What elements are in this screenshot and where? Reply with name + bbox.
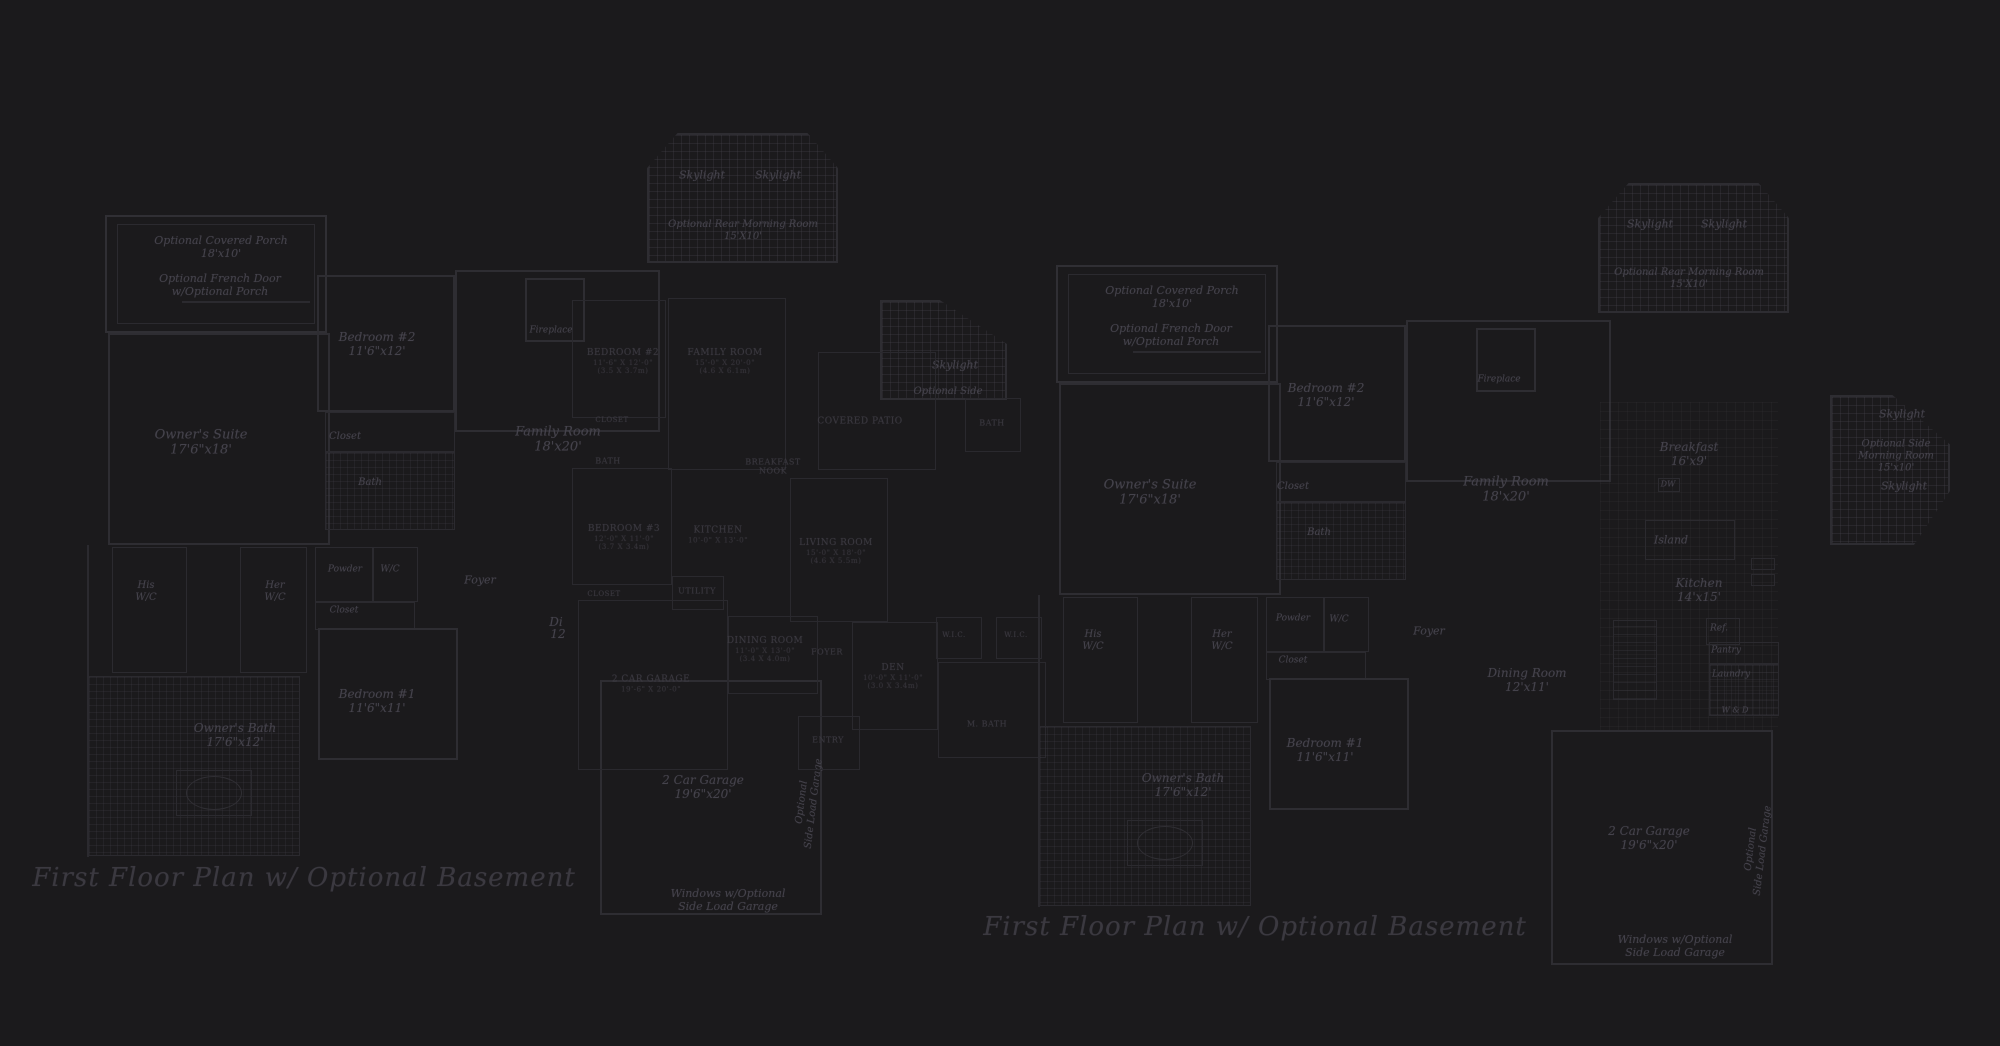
right-plan-title: First Floor Plan w/ Optional Basement xyxy=(983,912,1527,942)
room-label-2-car-garage: 2 Car Garage19'6"x20' xyxy=(1608,824,1690,852)
bath-room xyxy=(1276,502,1406,580)
left-plan-title: First Floor Plan w/ Optional Basement xyxy=(32,863,576,893)
room-label-her: HerW/C xyxy=(1211,629,1232,653)
room-label-optional-french-door: Optional French Doorw/Optional Porch xyxy=(1110,323,1232,349)
room-label-w-d: W & D xyxy=(1722,705,1749,714)
his-wc-room xyxy=(1063,597,1138,723)
room-label-skylight: Skylight xyxy=(1879,409,1925,422)
room-label-skylight: Skylight xyxy=(1701,219,1747,232)
french-door-line xyxy=(1133,351,1261,353)
room-label-laundry: Laundry xyxy=(1712,670,1750,681)
room-label-island: Island xyxy=(1654,535,1688,548)
room-label-closet: Closet xyxy=(1279,656,1308,667)
tub-oval xyxy=(1137,826,1193,860)
room-label-breakfast: Breakfast16'x9' xyxy=(1660,440,1719,468)
stairs xyxy=(1613,620,1657,700)
room-label-w-c: W/C xyxy=(1329,615,1348,626)
room-label-powder: Powder xyxy=(1276,614,1310,625)
room-label-skylight: Skylight xyxy=(1627,219,1673,232)
room-label-dining-room: Dining Room12'x11' xyxy=(1487,666,1566,694)
room-label-dw: DW xyxy=(1661,479,1676,488)
oven-box-1 xyxy=(1751,558,1775,570)
room-label-bath: Bath xyxy=(1307,527,1331,539)
room-label-family-room: Family Room18'x20' xyxy=(1463,475,1549,506)
owners-bath-room xyxy=(1039,726,1251,906)
room-label-owner-s-bath: Owner's Bath17'6"x12' xyxy=(1142,771,1224,799)
her-wc-room xyxy=(1191,597,1258,723)
blueprint-composite-canvas: Optional Covered Porch18'x10'Optional Fr… xyxy=(0,0,2000,1046)
room-label-fireplace: Fireplace xyxy=(1477,375,1520,386)
room-label-foyer: Foyer xyxy=(1413,626,1445,639)
room-label-closet: Closet xyxy=(1277,481,1309,493)
room-label-optional-rear-morning-room: Optional Rear Morning Room15'X10' xyxy=(1614,267,1764,291)
room-label-bedroom-2: Bedroom #211'6"x12' xyxy=(1288,381,1365,409)
rear-morning-room xyxy=(1598,183,1789,313)
room-label-optional-covered-porch: Optional Covered Porch18'x10' xyxy=(1105,285,1238,311)
room-label-windows-w-optional: Windows w/OptionalSide Load Garage xyxy=(1618,934,1733,960)
room-label-bedroom-1: Bedroom #111'6"x11' xyxy=(1287,736,1364,764)
oven-box-2 xyxy=(1751,574,1775,586)
room-label-skylight: Skylight xyxy=(1881,481,1927,494)
room-label-optional-side: Optional SideMorning Room15'x10' xyxy=(1858,438,1934,473)
room-label-owner-s-suite: Owner's Suite17'6"x18' xyxy=(1104,478,1197,509)
room-label-his: HisW/C xyxy=(1082,629,1103,653)
room-label-pantry: Pantry xyxy=(1711,646,1741,657)
room-label-kitchen: Kitchen14'x15' xyxy=(1676,576,1723,604)
room-label-ref: Ref. xyxy=(1710,624,1728,635)
powder-room xyxy=(1266,597,1324,652)
